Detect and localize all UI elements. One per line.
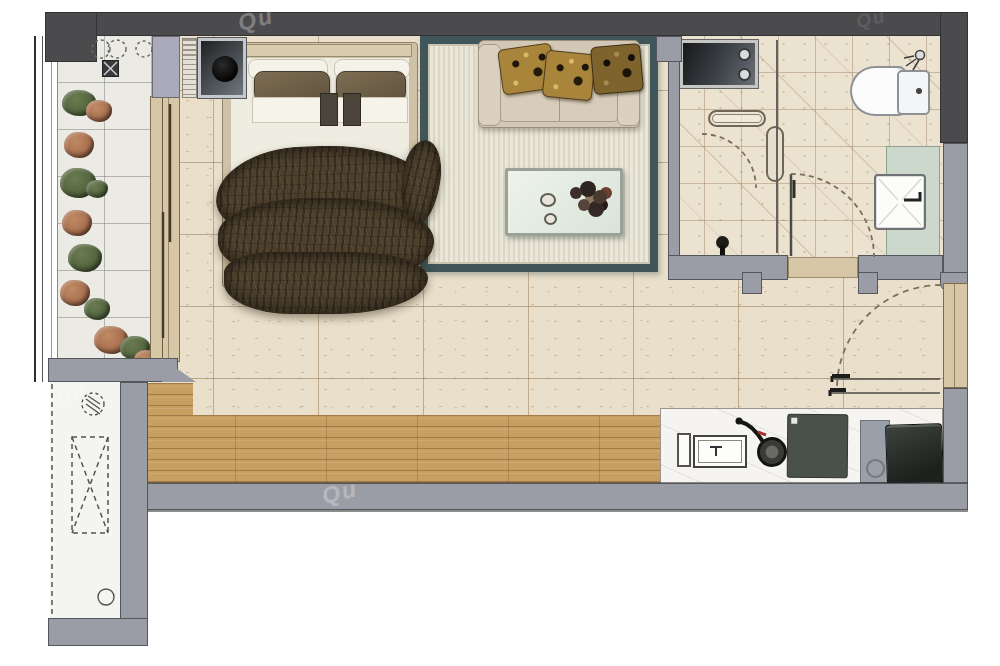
utility-shaft-floor [50,382,122,620]
drainboard [677,433,691,467]
wall-right-middle [943,143,968,283]
wall-bathroom-bottom-left [668,255,788,280]
knob-icon [738,48,751,61]
washing-machine [680,40,758,88]
door-jamb [858,272,878,294]
wall-balcony-bottom [48,358,178,382]
floor-drain-icon [102,60,119,77]
plant [86,100,112,122]
wall-pillar [152,36,180,98]
wall-shaft-right [120,382,148,622]
knob-icon [738,68,751,81]
plant [84,298,110,320]
wall-top [45,12,968,36]
floor-brush [716,236,729,249]
plant [68,244,102,272]
entry-wood-floor [145,415,662,486]
wall-bottom [145,483,968,510]
plate [540,193,556,207]
lamp-icon [212,56,238,82]
entry-door-leaf [943,283,968,388]
floor-plan: Qu Qu Qu Qu [0,0,1000,666]
balcony-sliding-door [150,96,180,362]
dark-throw-pillow [590,43,644,95]
wall-right-upper [940,12,968,143]
wall-bathroom-left [668,36,680,258]
bed-runner-accent [320,93,338,126]
bedside-cabinet [198,38,246,98]
wall-corner-block [45,12,97,62]
plant [86,180,108,198]
radiator-hatch [182,38,197,98]
towel-rail [708,110,766,127]
cooktop-slab [787,414,849,479]
plate [544,213,557,225]
plant [62,210,92,236]
bathroom-threshold [788,257,858,278]
bed-headboard [228,44,412,57]
wall-pillar [656,36,682,62]
bed-runner-accent [343,93,361,126]
door-jamb [742,272,762,294]
refrigerator [885,423,944,485]
wall-shaft-bottom [48,618,148,646]
flower-arrangement [570,187,582,199]
toilet-tank [897,70,930,115]
plant [64,132,94,158]
kitchen-sink [693,435,747,468]
gold-throw-pillow [542,50,597,102]
water-heater [766,126,784,182]
balcony-window-wall [34,36,58,382]
coffee-table [505,168,623,236]
wash-basin [874,174,926,230]
